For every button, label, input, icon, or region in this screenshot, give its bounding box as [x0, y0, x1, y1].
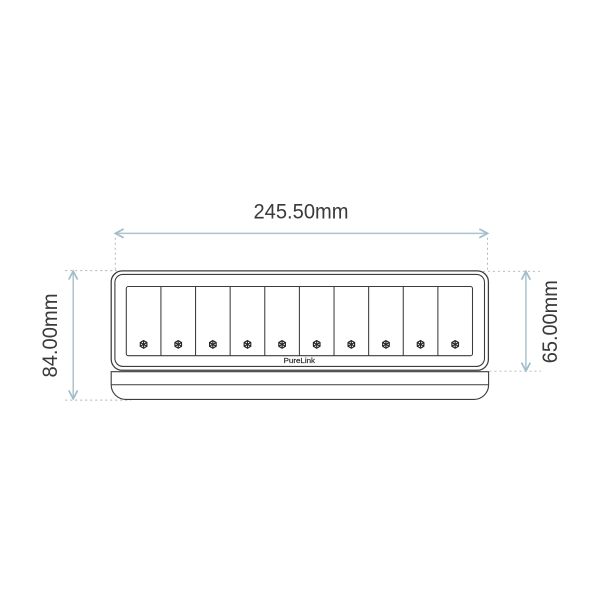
svg-text:245.50mm: 245.50mm	[254, 200, 349, 223]
svg-text:65.00mm: 65.00mm	[539, 280, 562, 363]
svg-text:PureLink: PureLink	[284, 356, 316, 365]
svg-text:84.00mm: 84.00mm	[39, 294, 62, 378]
